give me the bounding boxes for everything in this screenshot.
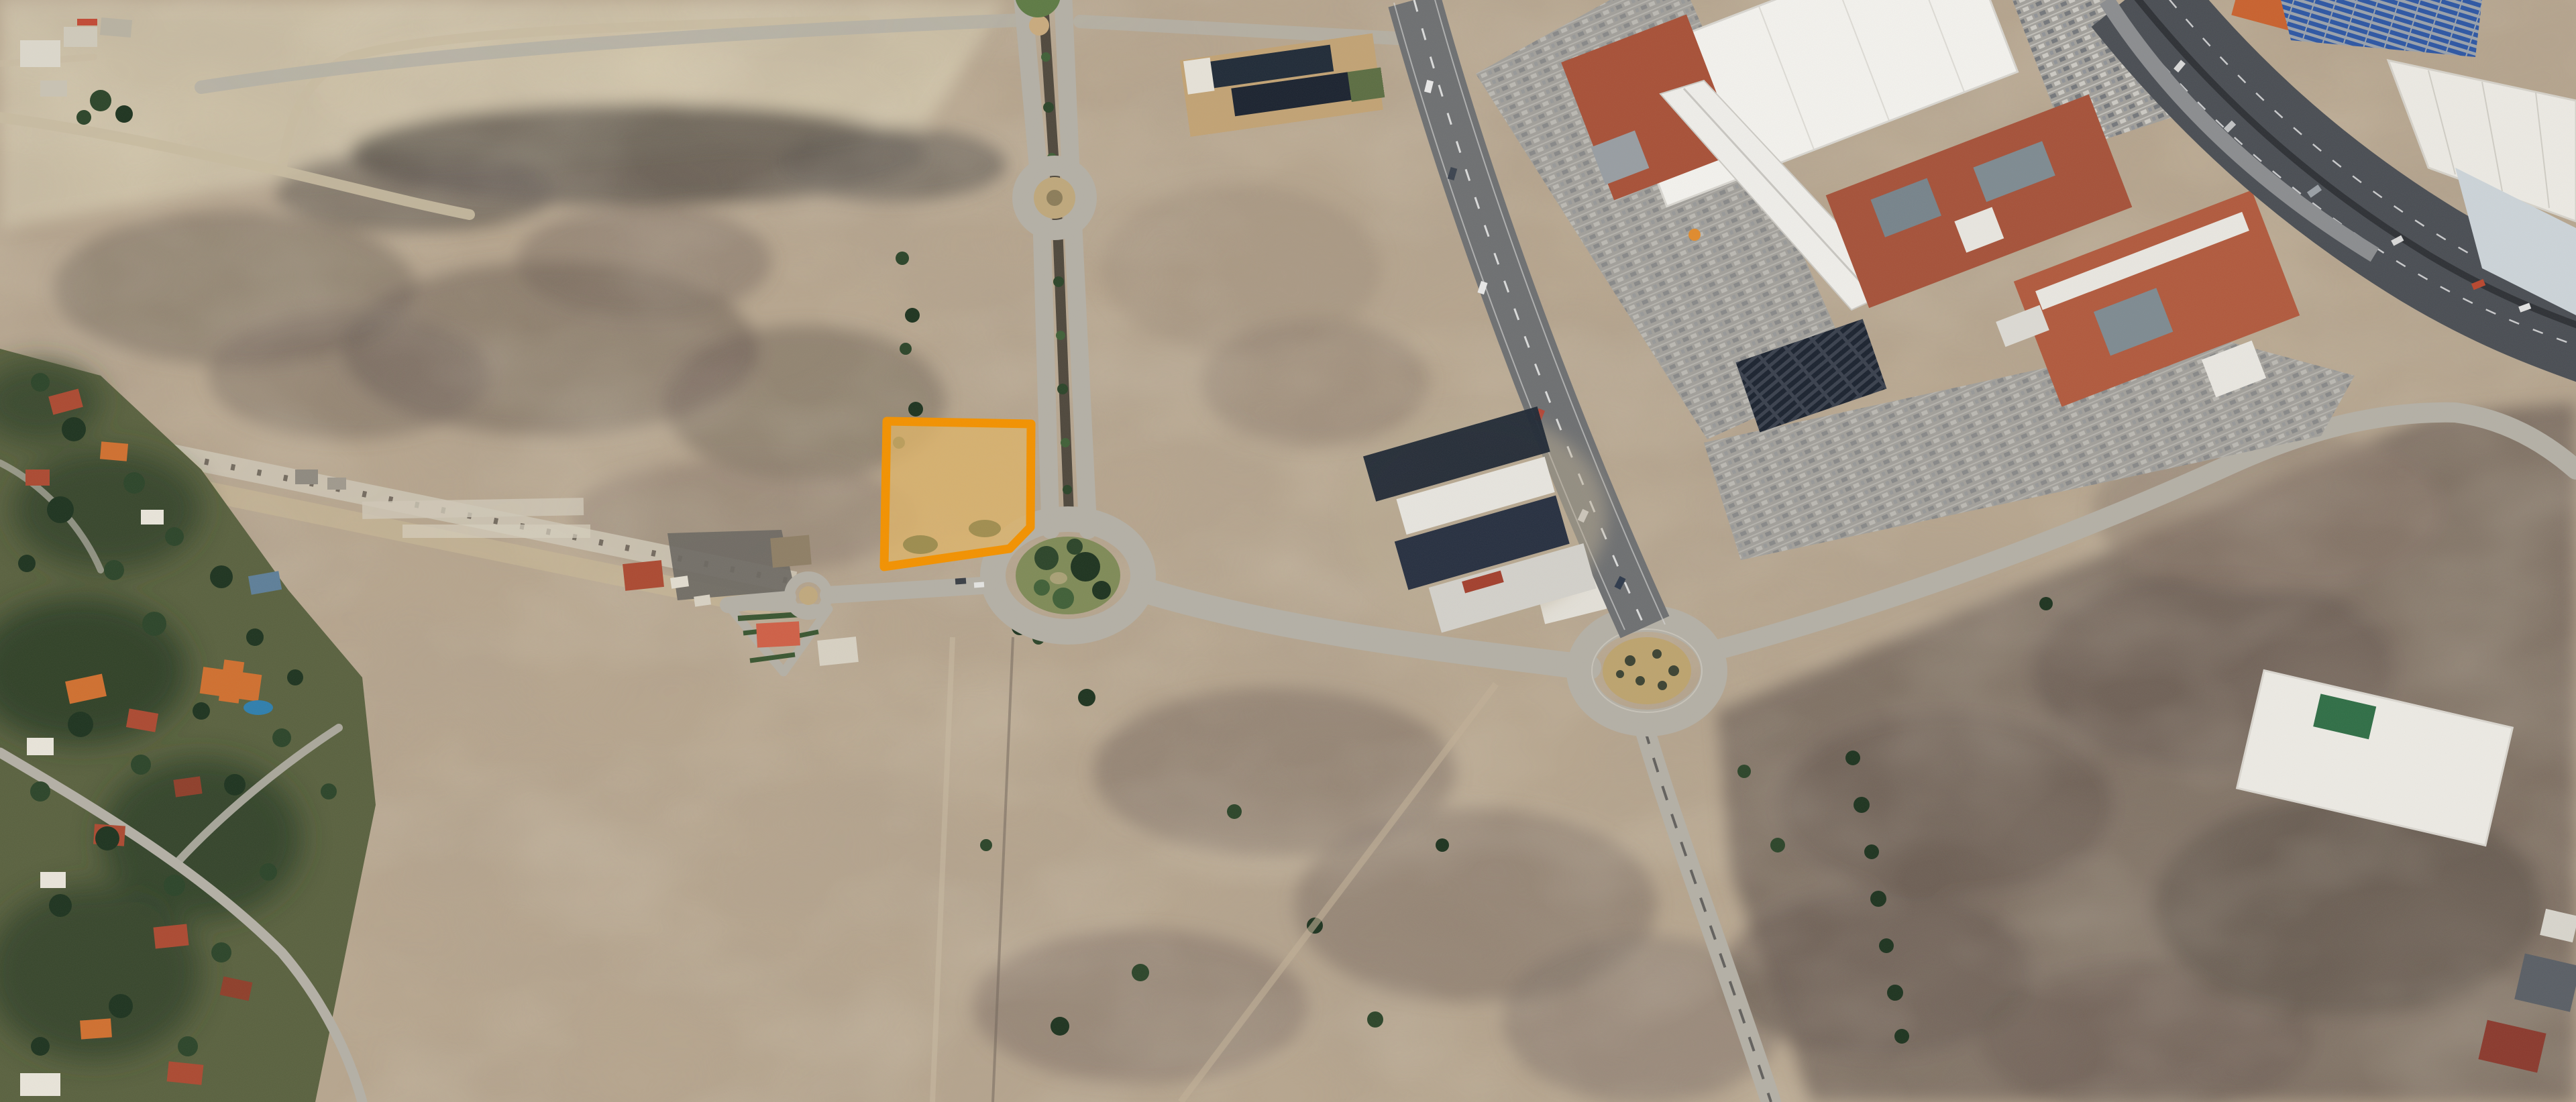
satellite-map-canvas[interactable]	[0, 0, 2576, 1102]
film-grain-overlay	[0, 0, 2576, 1102]
aerial-map-viewport[interactable]	[0, 0, 2576, 1102]
